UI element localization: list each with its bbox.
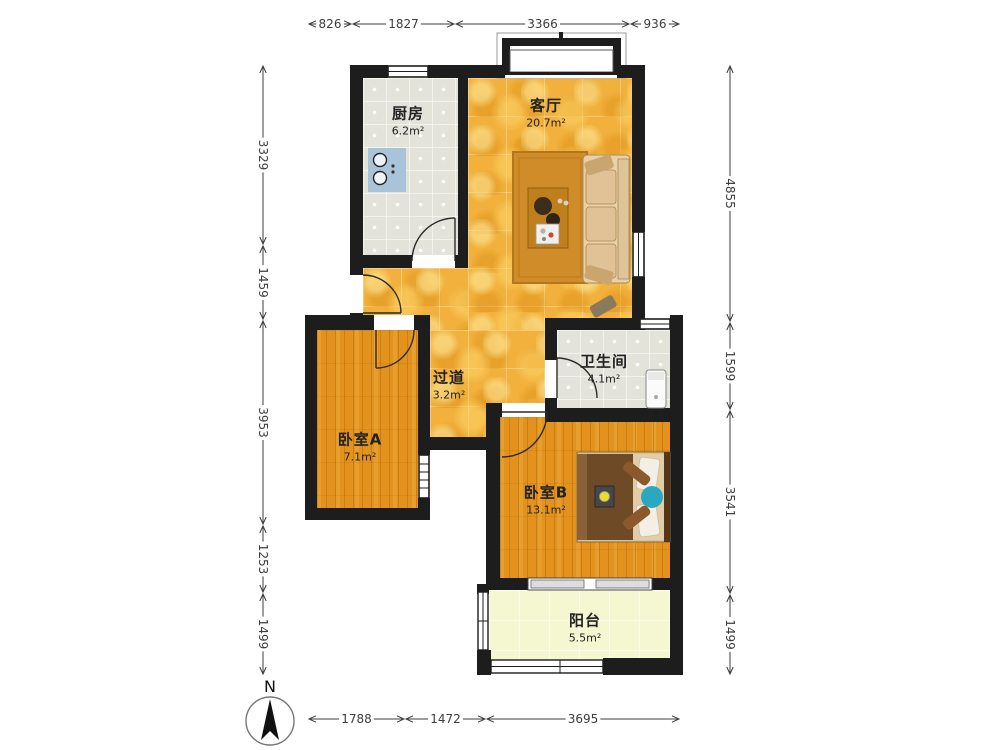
svg-text:3953: 3953 — [256, 407, 270, 438]
bedroom-a-floor — [317, 330, 418, 508]
floor-plan: N 82618273366936178814723695332914593953… — [0, 0, 1000, 750]
dim-right-2: 3541 — [723, 411, 737, 593]
svg-text:1788: 1788 — [341, 712, 372, 726]
compass-label: N — [264, 677, 276, 696]
dim-top-1: 1827 — [353, 17, 454, 31]
entry-floor — [363, 268, 468, 330]
svg-text:936: 936 — [644, 17, 667, 31]
bathroom-name: 卫生间 — [580, 352, 628, 371]
svg-text:1472: 1472 — [430, 712, 461, 726]
svg-text:1499: 1499 — [723, 619, 737, 650]
kitchen-window — [388, 66, 428, 77]
svg-text:826: 826 — [319, 17, 342, 31]
dim-top-2: 3366 — [456, 17, 629, 31]
dim-right-1: 1599 — [723, 323, 737, 409]
dim-top-0: 826 — [309, 17, 351, 31]
bedroom-b-area: 13.1m² — [524, 503, 568, 517]
dim-left-3: 1253 — [256, 526, 270, 592]
dim-left-2: 3953 — [256, 321, 270, 524]
bedroom-b-name: 卧室B — [524, 483, 568, 502]
balcony-label: 阳台 5.5m² — [569, 611, 602, 645]
svg-text:1253: 1253 — [256, 544, 270, 575]
dim-left-4: 1499 — [256, 594, 270, 674]
balcony-bottom-window — [491, 660, 603, 673]
compass-circle — [246, 697, 294, 745]
kitchen-name: 厨房 — [392, 104, 425, 123]
hallway-area: 3.2m² — [433, 388, 466, 402]
bedroom-a-label: 卧室A 7.1m² — [338, 430, 383, 464]
dim-bottom-1: 1472 — [406, 712, 485, 726]
kitchen-label: 厨房 6.2m² — [392, 104, 425, 138]
balcony-name: 阳台 — [569, 611, 602, 630]
bathroom-label: 卫生间 4.1m² — [580, 352, 628, 386]
bathroom-area: 4.1m² — [580, 372, 628, 386]
svg-text:3695: 3695 — [568, 712, 599, 726]
bedroom-b-sliding-door — [528, 578, 652, 590]
hallway-label: 过道 3.2m² — [433, 368, 466, 402]
bedroom-a-window — [419, 455, 429, 498]
dim-left-0: 3329 — [256, 66, 270, 244]
svg-text:1459: 1459 — [256, 267, 270, 298]
dim-bottom-2: 3695 — [487, 712, 679, 726]
hallway-name: 过道 — [433, 368, 466, 387]
bedroom-b-label: 卧室B 13.1m² — [524, 483, 568, 517]
svg-text:3541: 3541 — [723, 487, 737, 518]
living-room-label: 客厅 20.7m² — [526, 96, 566, 130]
svg-text:1827: 1827 — [388, 17, 419, 31]
svg-text:1499: 1499 — [256, 619, 270, 650]
dim-left-1: 1459 — [256, 246, 270, 319]
bathroom-window — [640, 319, 670, 329]
living-room-name: 客厅 — [526, 96, 566, 115]
living-room-window — [633, 232, 644, 277]
dim-right-3: 1499 — [723, 595, 737, 674]
dim-top-3: 936 — [631, 17, 679, 31]
north-arrow-icon — [261, 699, 279, 740]
svg-text:3329: 3329 — [256, 140, 270, 171]
svg-text:1599: 1599 — [723, 351, 737, 382]
bedroom-a-area: 7.1m² — [338, 450, 383, 464]
kitchen-area: 6.2m² — [392, 124, 425, 138]
compass: N — [246, 677, 294, 745]
svg-text:3366: 3366 — [527, 17, 558, 31]
dim-right-0: 4855 — [723, 66, 737, 321]
bay-window — [497, 32, 626, 78]
svg-text:4855: 4855 — [723, 178, 737, 209]
bedroom-a-name: 卧室A — [338, 430, 383, 449]
balcony-left-window — [478, 592, 488, 650]
living-room-area: 20.7m² — [526, 116, 566, 130]
balcony-area: 5.5m² — [569, 631, 602, 645]
dim-bottom-0: 1788 — [309, 712, 404, 726]
